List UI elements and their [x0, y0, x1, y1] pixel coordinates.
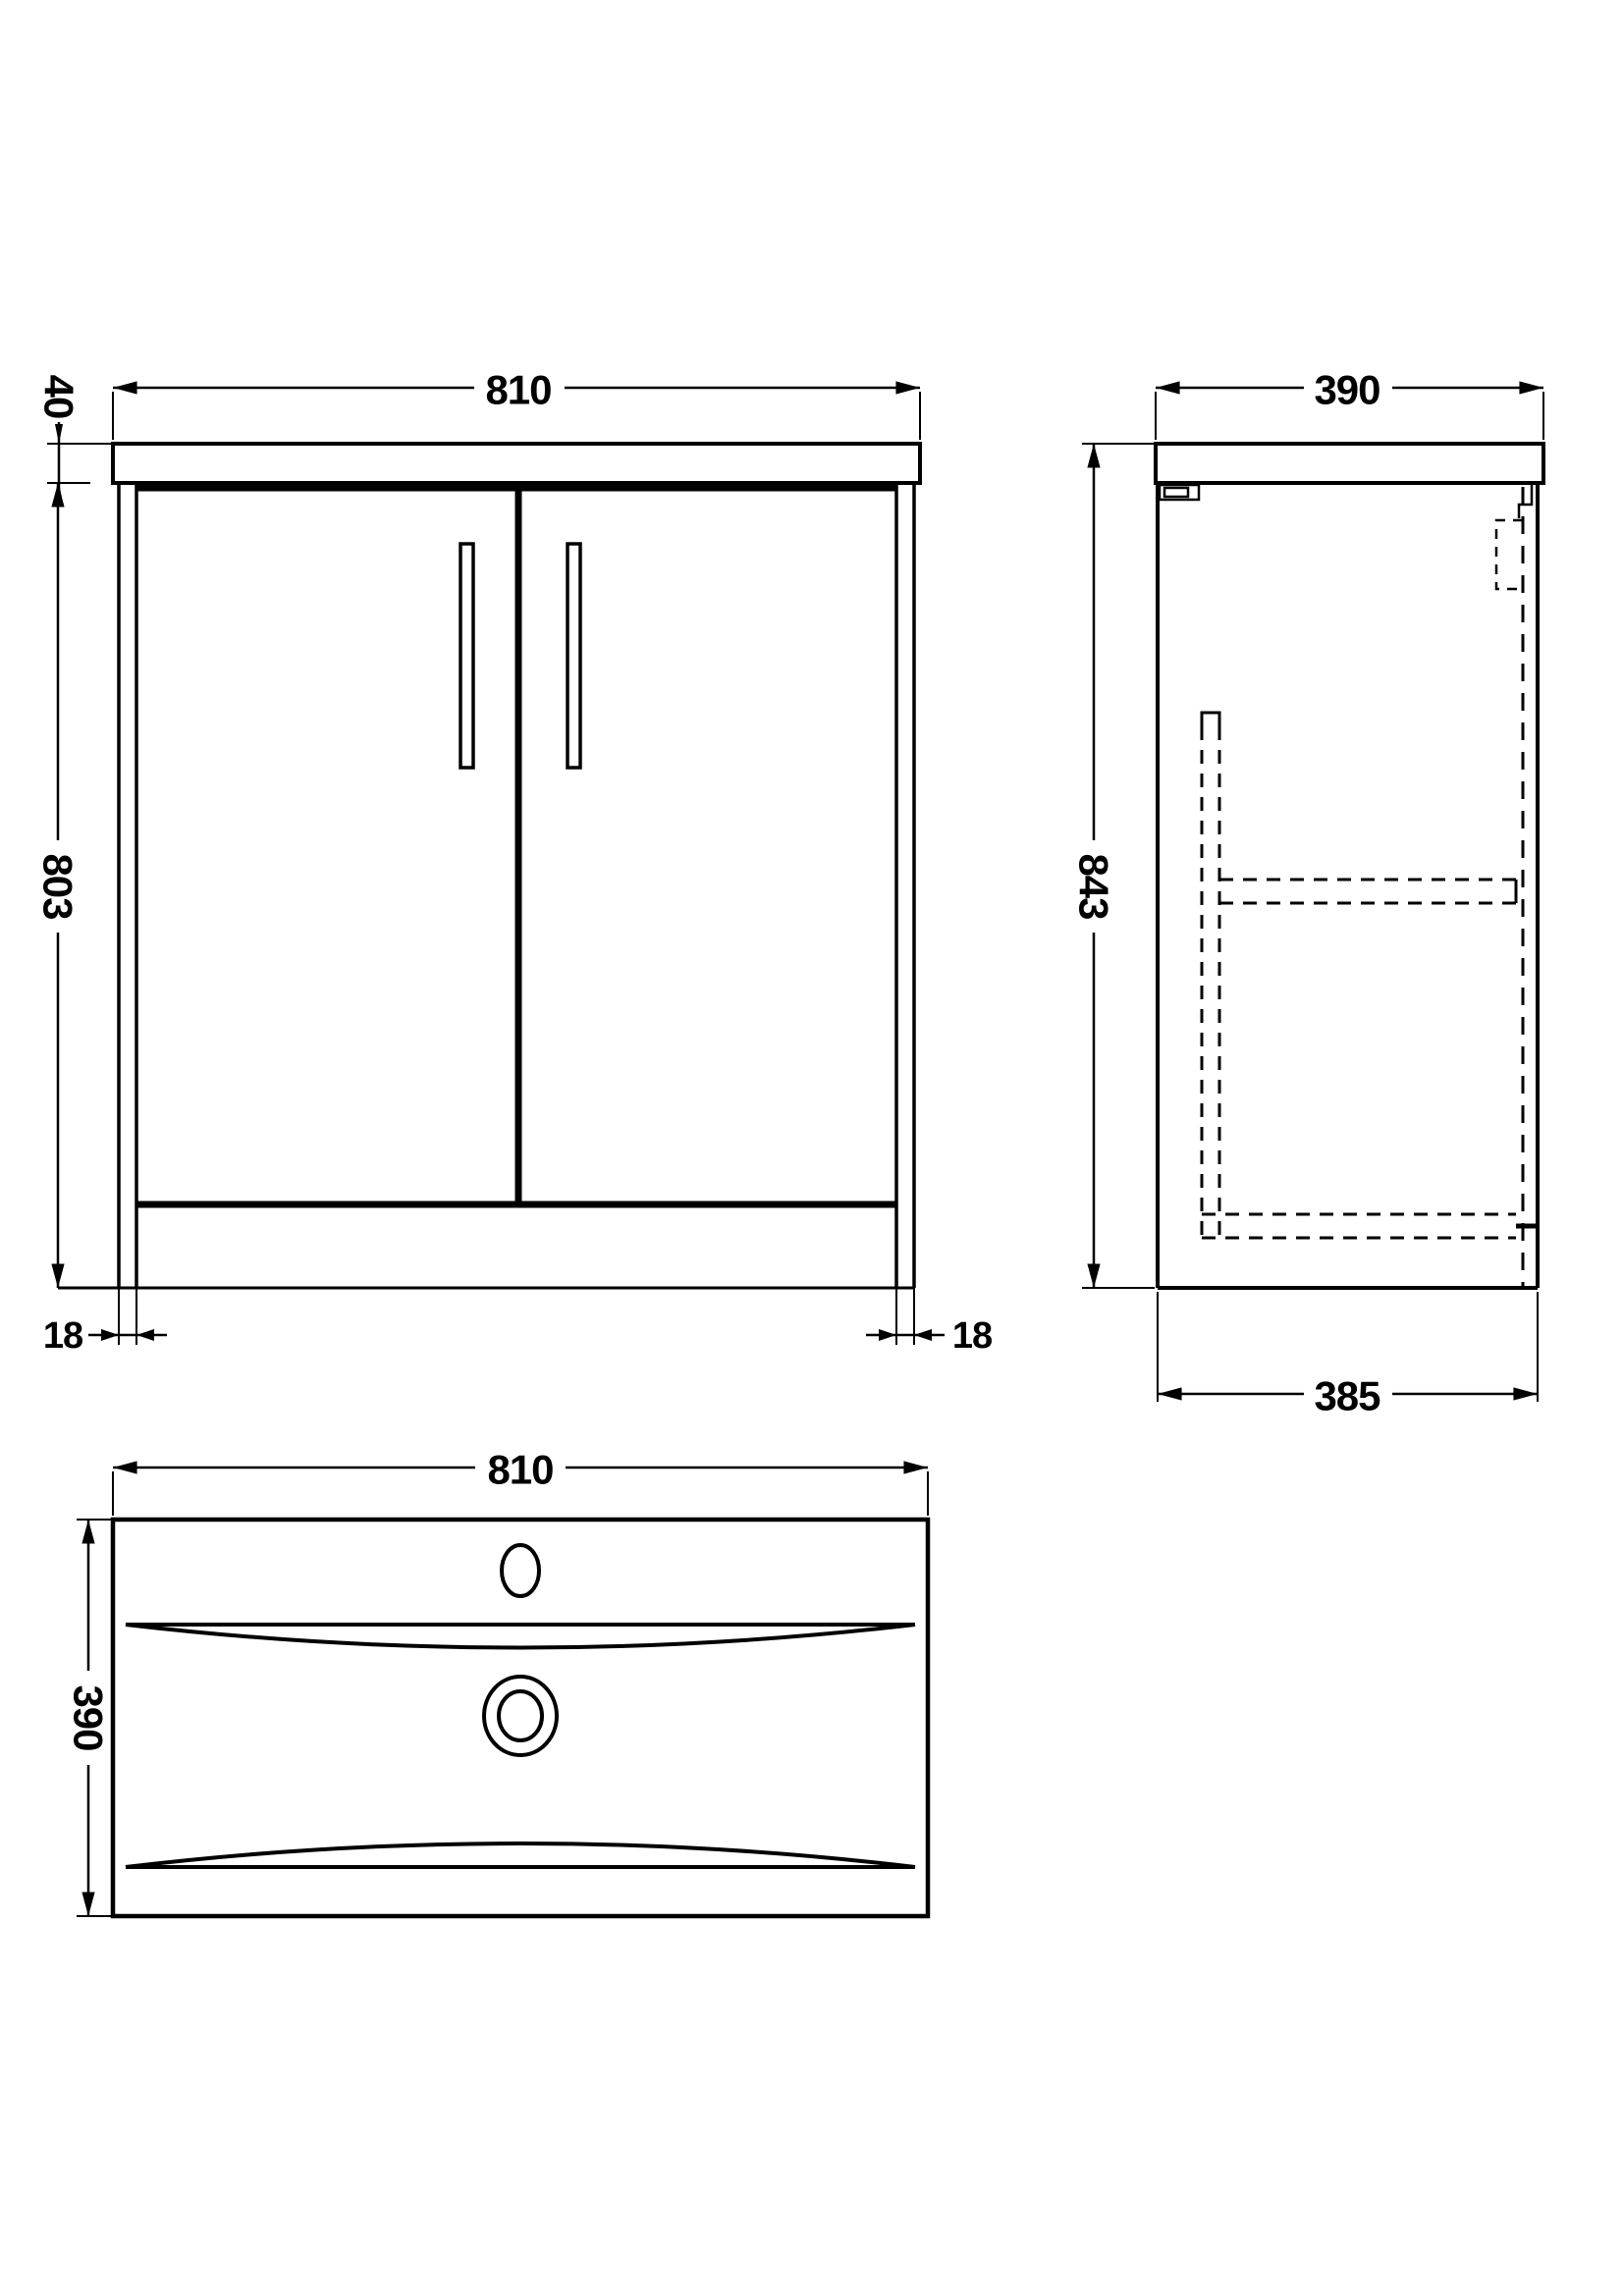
- front-width-label: 810: [485, 367, 551, 413]
- shelf-support-top-cap: [1202, 713, 1219, 726]
- front-left-panel-dimension: 18: [43, 1288, 167, 1357]
- left-door-handle: [460, 544, 473, 768]
- drawing-sheet: 810 40 803: [0, 0, 1623, 2296]
- front-height-label: 803: [35, 853, 81, 919]
- side-carcass: [1158, 483, 1538, 1288]
- basin-width-dimension: 810: [113, 1447, 928, 1517]
- side-elevation-view: 390 843: [1071, 367, 1544, 1419]
- front-worktop-thickness-label: 40: [36, 375, 82, 419]
- basin-depth-label: 390: [66, 1684, 112, 1750]
- basin-plan-view: 810 390: [66, 1447, 929, 1917]
- side-height-label: 843: [1071, 853, 1117, 919]
- front-left-panel-label: 18: [43, 1315, 82, 1357]
- side-worktop: [1156, 444, 1543, 483]
- side-fixing-bracket: [1160, 485, 1199, 500]
- front-worktop: [113, 444, 920, 483]
- front-doors: [136, 485, 896, 1207]
- front-elevation-view: 810 40 803: [35, 367, 993, 1358]
- front-height-dimension: 803: [35, 483, 81, 1288]
- technical-drawing-canvas: 810 40 803: [0, 0, 1623, 2296]
- front-width-dimension: 810: [113, 367, 920, 441]
- side-depth-dimension: 390: [1156, 367, 1543, 441]
- front-right-panel-label: 18: [952, 1315, 992, 1357]
- basin-depth-dimension: 390: [66, 1520, 112, 1916]
- basin-width-label: 810: [487, 1447, 553, 1493]
- side-depth-label: 390: [1314, 367, 1380, 413]
- side-bottom-depth-label: 385: [1314, 1373, 1380, 1419]
- right-door-handle: [568, 544, 580, 768]
- front-worktop-thickness-dimension: 40: [36, 375, 112, 507]
- side-height-dimension: 843: [1071, 444, 1156, 1288]
- side-hinge-detail: [1496, 483, 1532, 589]
- side-bottom-depth-dimension: 385: [1158, 1292, 1538, 1419]
- side-interior-hidden-lines: [1202, 713, 1536, 1239]
- front-right-panel-dimension: 18: [866, 1288, 992, 1357]
